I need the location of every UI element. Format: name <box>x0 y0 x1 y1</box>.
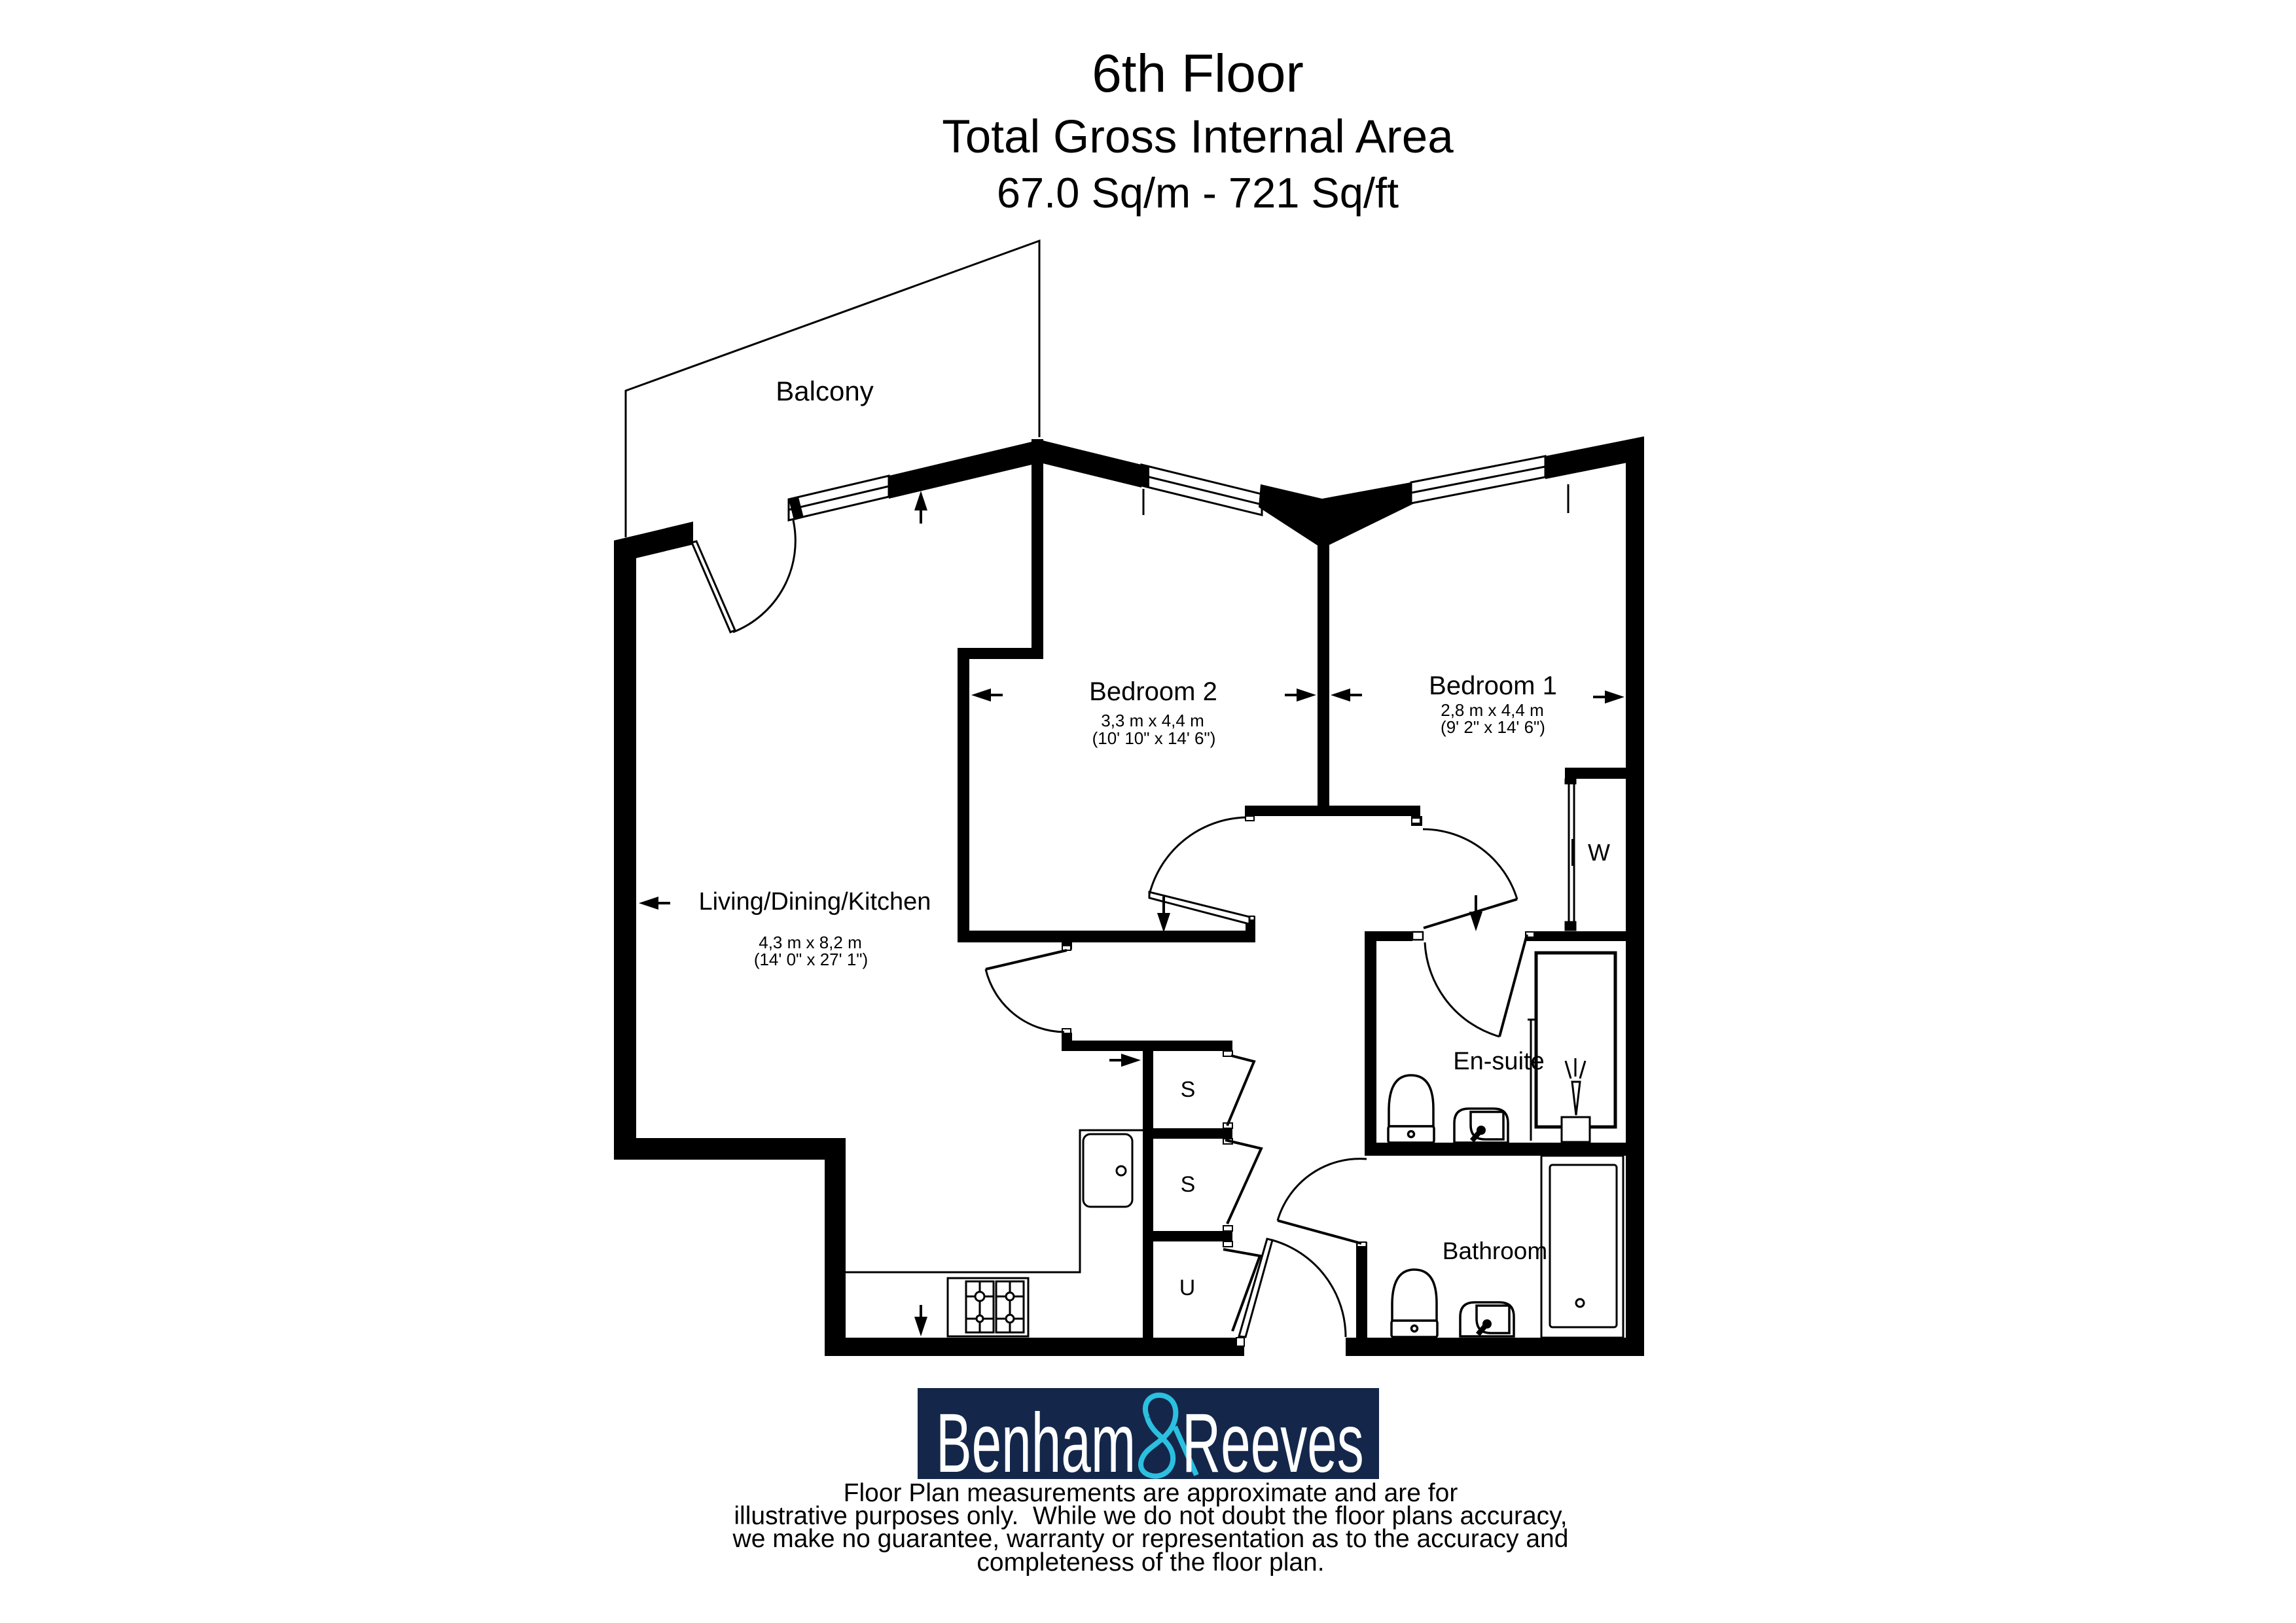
svg-text:U: U <box>1179 1275 1196 1300</box>
svg-text:S: S <box>1181 1172 1196 1197</box>
svg-text:(9' 2" x 14' 6"): (9' 2" x 14' 6") <box>1441 717 1545 737</box>
svg-text:S: S <box>1181 1077 1196 1102</box>
svg-text:W: W <box>1588 839 1610 866</box>
svg-text:Bedroom 2: Bedroom 2 <box>1089 677 1217 706</box>
svg-text:Total Gross Internal Area: Total Gross Internal Area <box>942 111 1454 163</box>
svg-text:67.0 Sq/m - 721 Sq/ft: 67.0 Sq/m - 721 Sq/ft <box>997 169 1399 217</box>
svg-text:Bedroom 1: Bedroom 1 <box>1429 671 1557 700</box>
svg-text:Living/Dining/Kitchen: Living/Dining/Kitchen <box>699 888 931 916</box>
svg-text:6th Floor: 6th Floor <box>1092 44 1304 103</box>
svg-text:Bathroom: Bathroom <box>1443 1238 1547 1264</box>
svg-text:(14' 0" x 27' 1"): (14' 0" x 27' 1") <box>754 950 868 969</box>
svg-text:Balcony: Balcony <box>776 376 873 406</box>
svg-text:(10' 10" x 14' 6"): (10' 10" x 14' 6") <box>1092 728 1216 748</box>
svg-text:Reeves: Reeves <box>1182 1396 1364 1489</box>
svg-text:En-suite: En-suite <box>1453 1048 1544 1075</box>
svg-text:Benham: Benham <box>936 1396 1136 1489</box>
svg-text:completeness of the floor plan: completeness of the floor plan. <box>977 1548 1324 1577</box>
svg-text:3,3 m x 4,4 m: 3,3 m x 4,4 m <box>1101 711 1204 730</box>
